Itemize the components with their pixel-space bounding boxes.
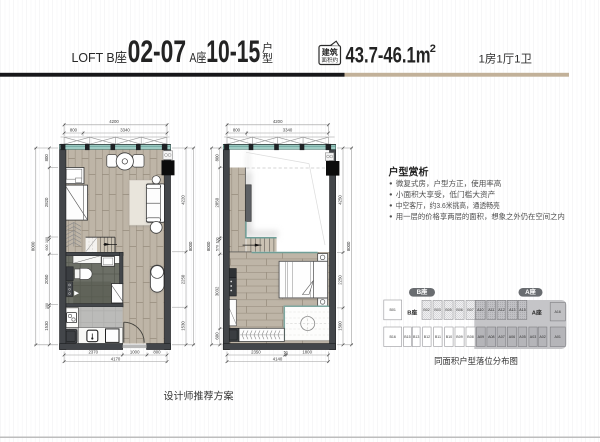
svg-text:1530: 1530	[181, 321, 186, 331]
svg-text:2850: 2850	[214, 197, 219, 207]
svg-text:LOFT B座: LOFT B座	[72, 50, 128, 65]
svg-text:600: 600	[214, 332, 219, 340]
svg-text:2250: 2250	[181, 274, 186, 284]
svg-text:B08: B08	[467, 335, 473, 339]
svg-text:B12: B12	[424, 335, 430, 339]
svg-text:4140: 4140	[273, 356, 283, 361]
svg-text:B02: B02	[423, 308, 429, 312]
svg-text:4170: 4170	[111, 356, 121, 361]
svg-text:A01: A01	[554, 335, 560, 339]
svg-text:B座: B座	[407, 308, 417, 316]
svg-text:3340: 3340	[283, 127, 293, 132]
svg-text:B16: B16	[389, 335, 395, 339]
svg-text:8000: 8000	[188, 241, 193, 251]
svg-text:800: 800	[153, 350, 161, 355]
svg-text:A10: A10	[477, 308, 483, 312]
svg-text:A06: A06	[509, 335, 515, 339]
svg-text:100: 100	[45, 237, 49, 243]
svg-text:B06: B06	[456, 308, 462, 312]
svg-text:1500: 1500	[338, 321, 343, 331]
svg-text:800: 800	[233, 127, 241, 132]
svg-text:B05: B05	[445, 308, 451, 312]
svg-text:02-07: 02-07	[128, 33, 187, 69]
svg-text:A03: A03	[530, 335, 536, 339]
svg-text:43.7-46.1m: 43.7-46.1m	[346, 43, 431, 68]
svg-text:800: 800	[214, 154, 219, 162]
svg-text:A02: A02	[539, 335, 545, 339]
svg-text:B10: B10	[446, 335, 452, 339]
svg-text:600: 600	[45, 245, 49, 251]
svg-text:A12: A12	[498, 308, 504, 312]
svg-text:1000: 1000	[130, 350, 140, 355]
svg-text:2050: 2050	[44, 274, 49, 284]
svg-text:100: 100	[215, 238, 219, 244]
svg-text:同面积户型落位分布图: 同面积户型落位分布图	[434, 356, 518, 366]
svg-text:B11: B11	[435, 335, 441, 339]
svg-text:4200: 4200	[109, 119, 119, 124]
svg-text:2350: 2350	[251, 350, 261, 355]
svg-text:100: 100	[45, 303, 49, 309]
svg-text:型: 型	[262, 51, 273, 65]
svg-text:A座: A座	[525, 288, 536, 296]
svg-text:B07: B07	[467, 308, 473, 312]
svg-text:4200: 4200	[273, 119, 283, 124]
svg-text:微复式房，户型方正，使用率高: 微复式房，户型方正，使用率高	[396, 178, 502, 188]
svg-text:A09: A09	[478, 335, 484, 339]
svg-text:B03: B03	[434, 308, 440, 312]
svg-text:800: 800	[44, 154, 49, 162]
svg-text:570: 570	[215, 245, 219, 251]
svg-text:A座: A座	[532, 308, 542, 316]
svg-text:建筑: 建筑	[321, 47, 338, 57]
svg-text:B座: B座	[417, 288, 428, 296]
svg-text:户型赏析: 户型赏析	[388, 166, 429, 179]
svg-text:8000: 8000	[346, 241, 351, 251]
svg-text:8000: 8000	[30, 241, 35, 251]
svg-text:800: 800	[70, 127, 78, 132]
svg-text:2820: 2820	[44, 197, 49, 207]
svg-text:A座: A座	[190, 50, 207, 65]
svg-text:1800: 1800	[302, 350, 312, 355]
svg-text:中空客厅，约3.6米挑高，通透畅亮: 中空客厅，约3.6米挑高，通透畅亮	[396, 200, 500, 210]
svg-text:A11: A11	[488, 308, 494, 312]
svg-text:B15: B15	[404, 335, 410, 339]
svg-text:2370: 2370	[89, 350, 99, 355]
svg-text:B13: B13	[413, 335, 419, 339]
svg-text:A07: A07	[498, 335, 504, 339]
svg-text:设计师推荐方案: 设计师推荐方案	[164, 390, 234, 403]
svg-text:B09: B09	[456, 335, 462, 339]
svg-text:1房1厅1卫: 1房1厅1卫	[479, 52, 533, 65]
svg-text:1530: 1530	[44, 321, 49, 331]
svg-text:10-15: 10-15	[206, 33, 260, 69]
svg-text:50: 50	[284, 351, 288, 355]
svg-text:A05: A05	[519, 335, 525, 339]
svg-text:8000: 8000	[206, 241, 211, 251]
svg-text:A13: A13	[509, 308, 515, 312]
svg-text:3032: 3032	[214, 286, 219, 296]
svg-text:A16: A16	[554, 310, 560, 314]
svg-text:3340: 3340	[120, 127, 130, 132]
svg-text:小面积大享受，低门槛大资产: 小面积大享受，低门槛大资产	[396, 189, 496, 199]
svg-text:4220: 4220	[181, 195, 186, 205]
svg-text:2250: 2250	[338, 275, 343, 285]
svg-text:B01: B01	[389, 308, 395, 312]
svg-text:A08: A08	[488, 335, 494, 339]
svg-text:A15: A15	[519, 308, 525, 312]
svg-text:4250: 4250	[338, 195, 343, 205]
svg-text:用一层的价格享两层的面积，想象之外仍在空间之内: 用一层的价格享两层的面积，想象之外仍在空间之内	[396, 211, 565, 221]
svg-text:2: 2	[430, 43, 436, 55]
svg-text:面积约: 面积约	[321, 56, 338, 64]
